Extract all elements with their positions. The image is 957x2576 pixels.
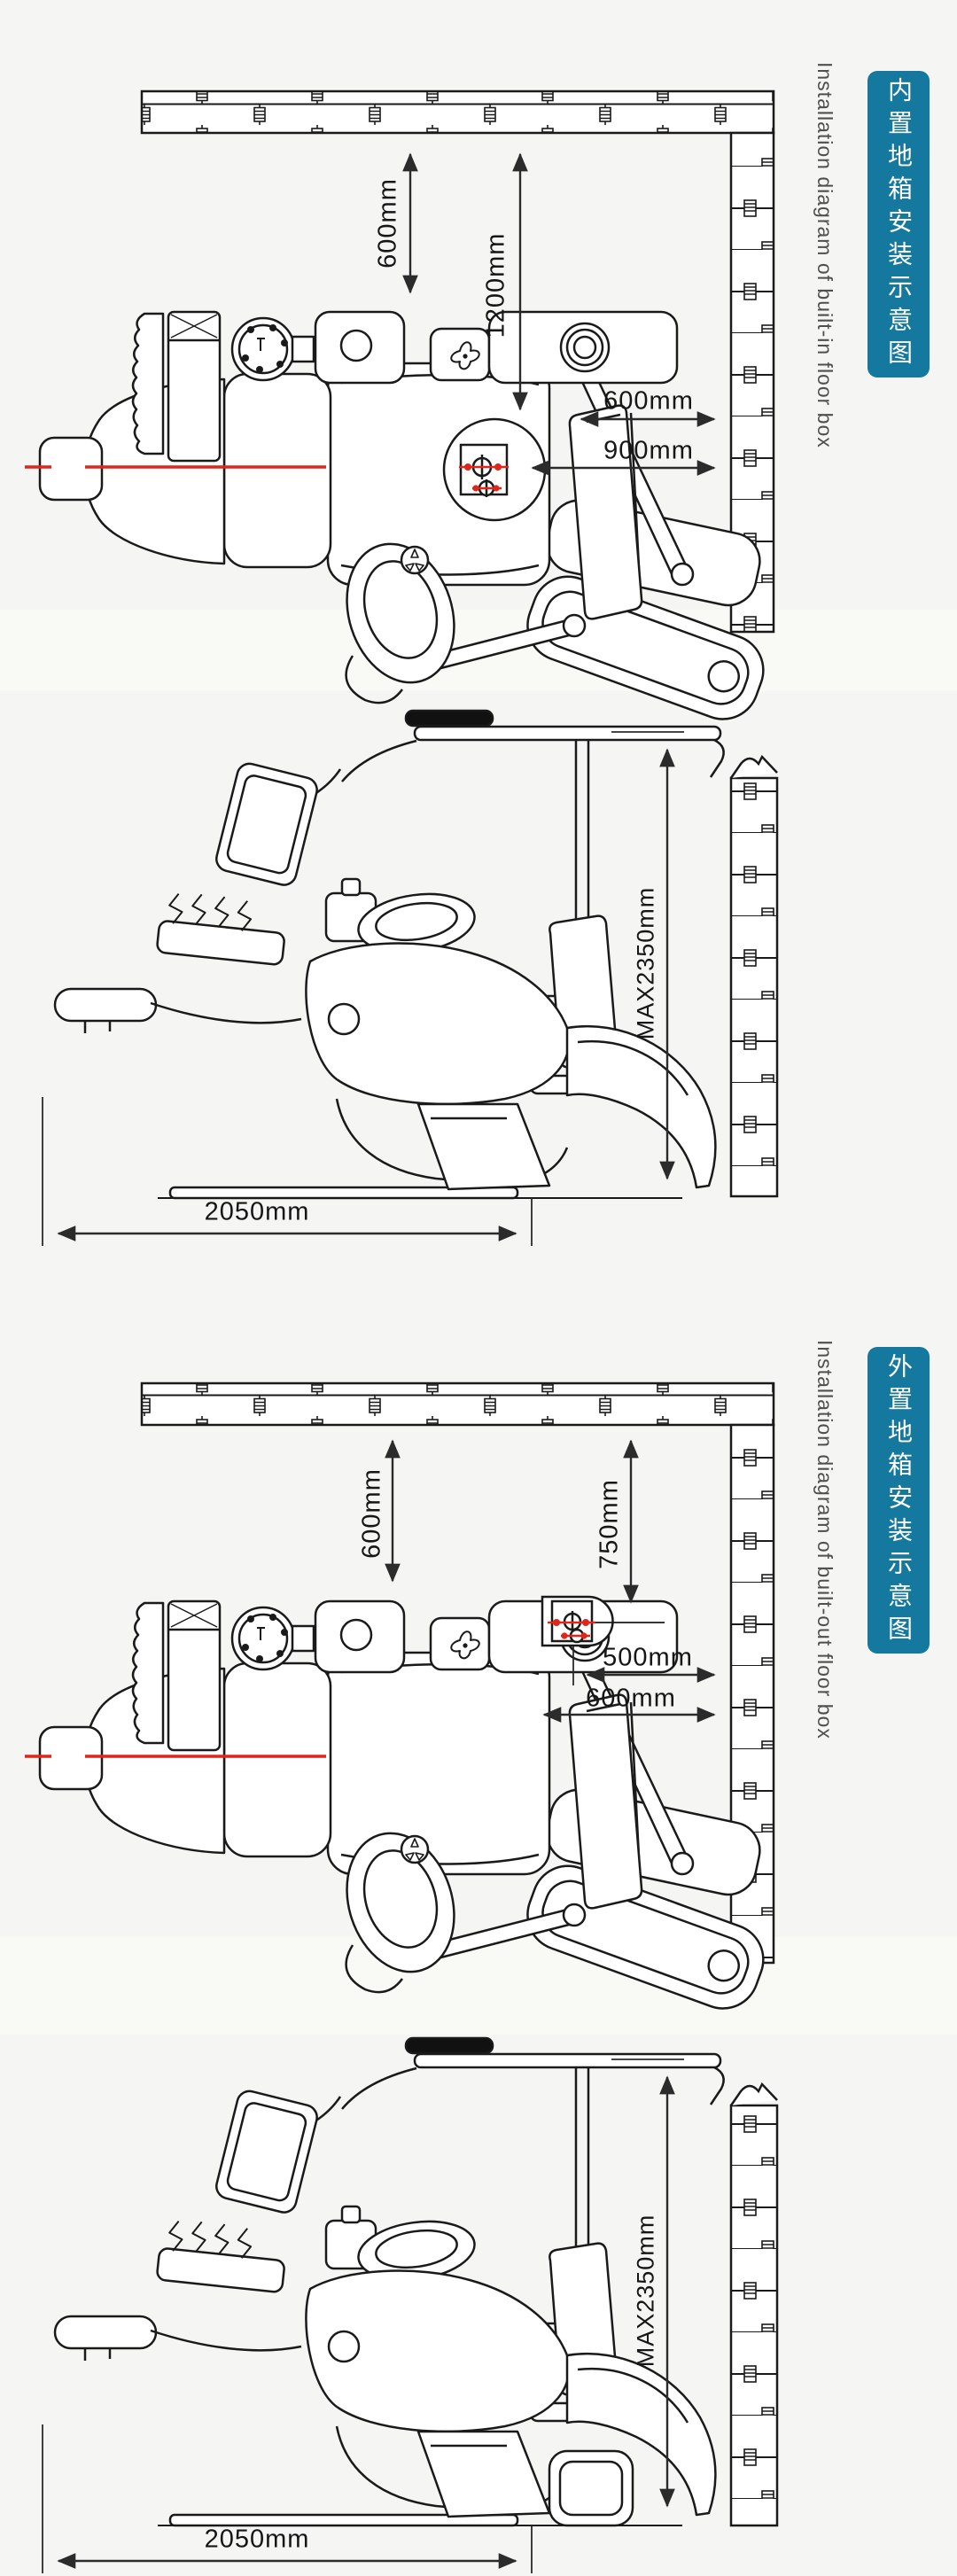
section2-side-view-chair: [55, 2038, 724, 2525]
dim-label-600mm-vertical: 600mm: [376, 178, 401, 268]
floor-box-built-in: [444, 419, 545, 520]
section1-top-view-chair: [25, 312, 774, 729]
dim-label-750mm-vertical: 750mm: [597, 1479, 623, 1569]
badge-built-in: 内置地箱安装示意图: [868, 71, 930, 377]
caption-built-in: Installation diagram of built-in floor b…: [813, 62, 836, 448]
dim-label-2050mm: 2050mm: [205, 1200, 310, 1226]
dim-label-600mm-horizontal: 600mm: [603, 389, 694, 415]
badge-built-out-text: 外置地箱安装示意图: [881, 1353, 916, 1648]
dim-label-600mm-vertical-2: 600mm: [360, 1468, 385, 1559]
installation-diagram-page: 600mm 1200mm 600mm 900mm MAX2350mm 2050m…: [0, 0, 957, 2576]
dim-label-500mm-horizontal: 500mm: [603, 1646, 693, 1671]
caption-built-out: Installation diagram of built-out floor …: [813, 1340, 836, 1739]
dim-label-2050mm-2: 2050mm: [205, 2527, 310, 2553]
badge-built-out: 外置地箱安装示意图: [868, 1347, 930, 1654]
dim-label-max2350mm: MAX2350mm: [634, 887, 658, 1040]
dim-label-600mm-horizontal-2: 600mm: [586, 1686, 676, 1712]
dim-label-max2350mm-2: MAX2350mm: [634, 2214, 658, 2368]
section1-side-view-wall: [731, 757, 777, 1196]
section1-side-view-chair: [55, 711, 724, 1198]
badge-built-in-text: 内置地箱安装示意图: [881, 77, 916, 372]
section2-side-view-wall: [731, 2084, 777, 2525]
dim-label-900mm-horizontal: 900mm: [603, 439, 694, 464]
dim-label-1200mm-vertical: 1200mm: [484, 233, 510, 339]
external-floor-box-side: [549, 2451, 633, 2525]
